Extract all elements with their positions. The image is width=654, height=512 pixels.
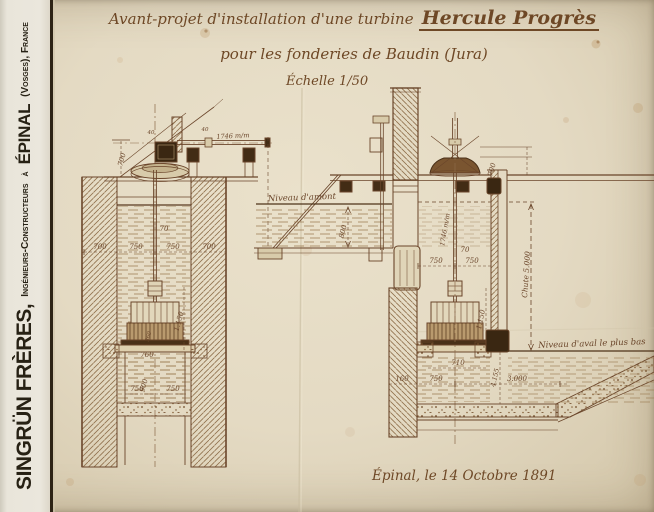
upstream-level-label: Niveau d'amont [267, 192, 337, 204]
archival-drawing-sheet: SINGRÜN FRÈRES, Ingénieurs-Constructeurs… [0, 0, 654, 512]
dim-label: 40 [147, 130, 155, 136]
dim-label: 760 [140, 351, 154, 359]
dim-label: 750 [465, 257, 479, 265]
dim-label: 160 [395, 375, 409, 383]
dim-label: 40 [201, 127, 209, 133]
right-section-view [254, 88, 654, 446]
dim-label: 750 [166, 243, 180, 251]
dim-label: 70 [461, 246, 470, 254]
engineering-drawing: 700 750 750 700 70 1.150 360 760 900 750… [0, 0, 654, 512]
dim-label: 750 [129, 243, 143, 251]
dim-label: 750 [429, 257, 443, 265]
downstream-level-label: Niveau d'aval le plus bas [537, 337, 646, 351]
dim-label: 700 [202, 243, 216, 251]
dim-label: 700 [93, 243, 107, 251]
dim-label: 700 [116, 151, 127, 167]
dim-label: 750 [429, 375, 443, 383]
dim-label: 70 [160, 225, 169, 233]
dim-label: 4.155 [489, 368, 501, 389]
dim-label: 710 [451, 359, 465, 367]
dim-label: 750 [166, 385, 180, 393]
dim-label: 750 [130, 385, 144, 393]
head-label: Chute 5.000 [520, 251, 532, 298]
shaft-length-label: 1746 m/m [216, 131, 250, 141]
left-section-view [82, 99, 272, 467]
dim-label: 3.000 [507, 375, 528, 383]
